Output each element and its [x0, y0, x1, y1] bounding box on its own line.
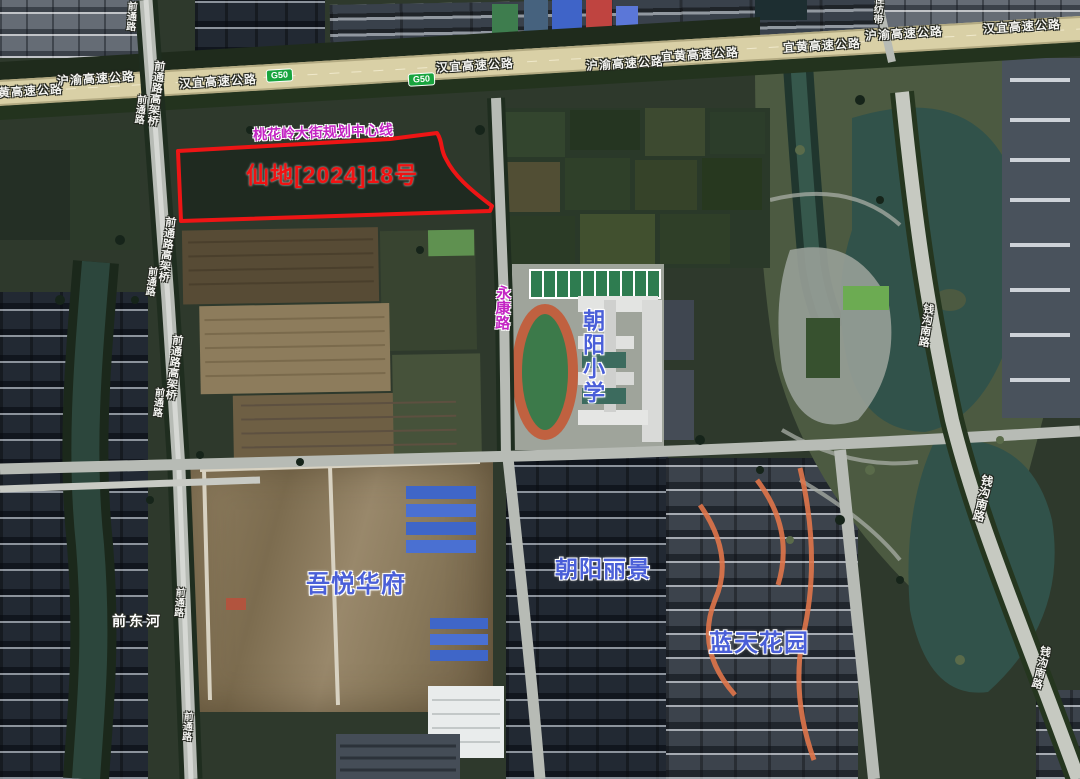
road-label: 前通路: [171, 587, 184, 618]
road-label: 前通路: [179, 711, 192, 742]
road-label: 前通路: [123, 1, 136, 32]
parcel-label: 仙地[2024]18号: [246, 163, 418, 187]
river-label: 前东河: [112, 614, 163, 629]
route-badge-g50: G50: [408, 72, 436, 87]
place-label-wuyue: 吾悦华府: [306, 572, 406, 597]
place-label-school: 朝阳小学: [581, 309, 604, 405]
road-label: 前通路: [131, 93, 145, 124]
satellite-map: 黄高速公路 沪渝高速公路 汉宜高速公路 汉宜高速公路 沪渝高速公路 宜黄高速公路…: [0, 0, 1080, 779]
street-label-yongkang: 永康路: [493, 285, 510, 331]
road-label: 前通路: [142, 265, 156, 296]
road-label: 前通路: [149, 387, 163, 418]
place-label-chaoyanglijing: 朝阳丽景: [555, 557, 651, 581]
road-label: 佳纺带: [870, 0, 882, 24]
place-label-lantian: 蓝天花园: [709, 631, 809, 656]
route-badge-g50: G50: [266, 68, 294, 83]
